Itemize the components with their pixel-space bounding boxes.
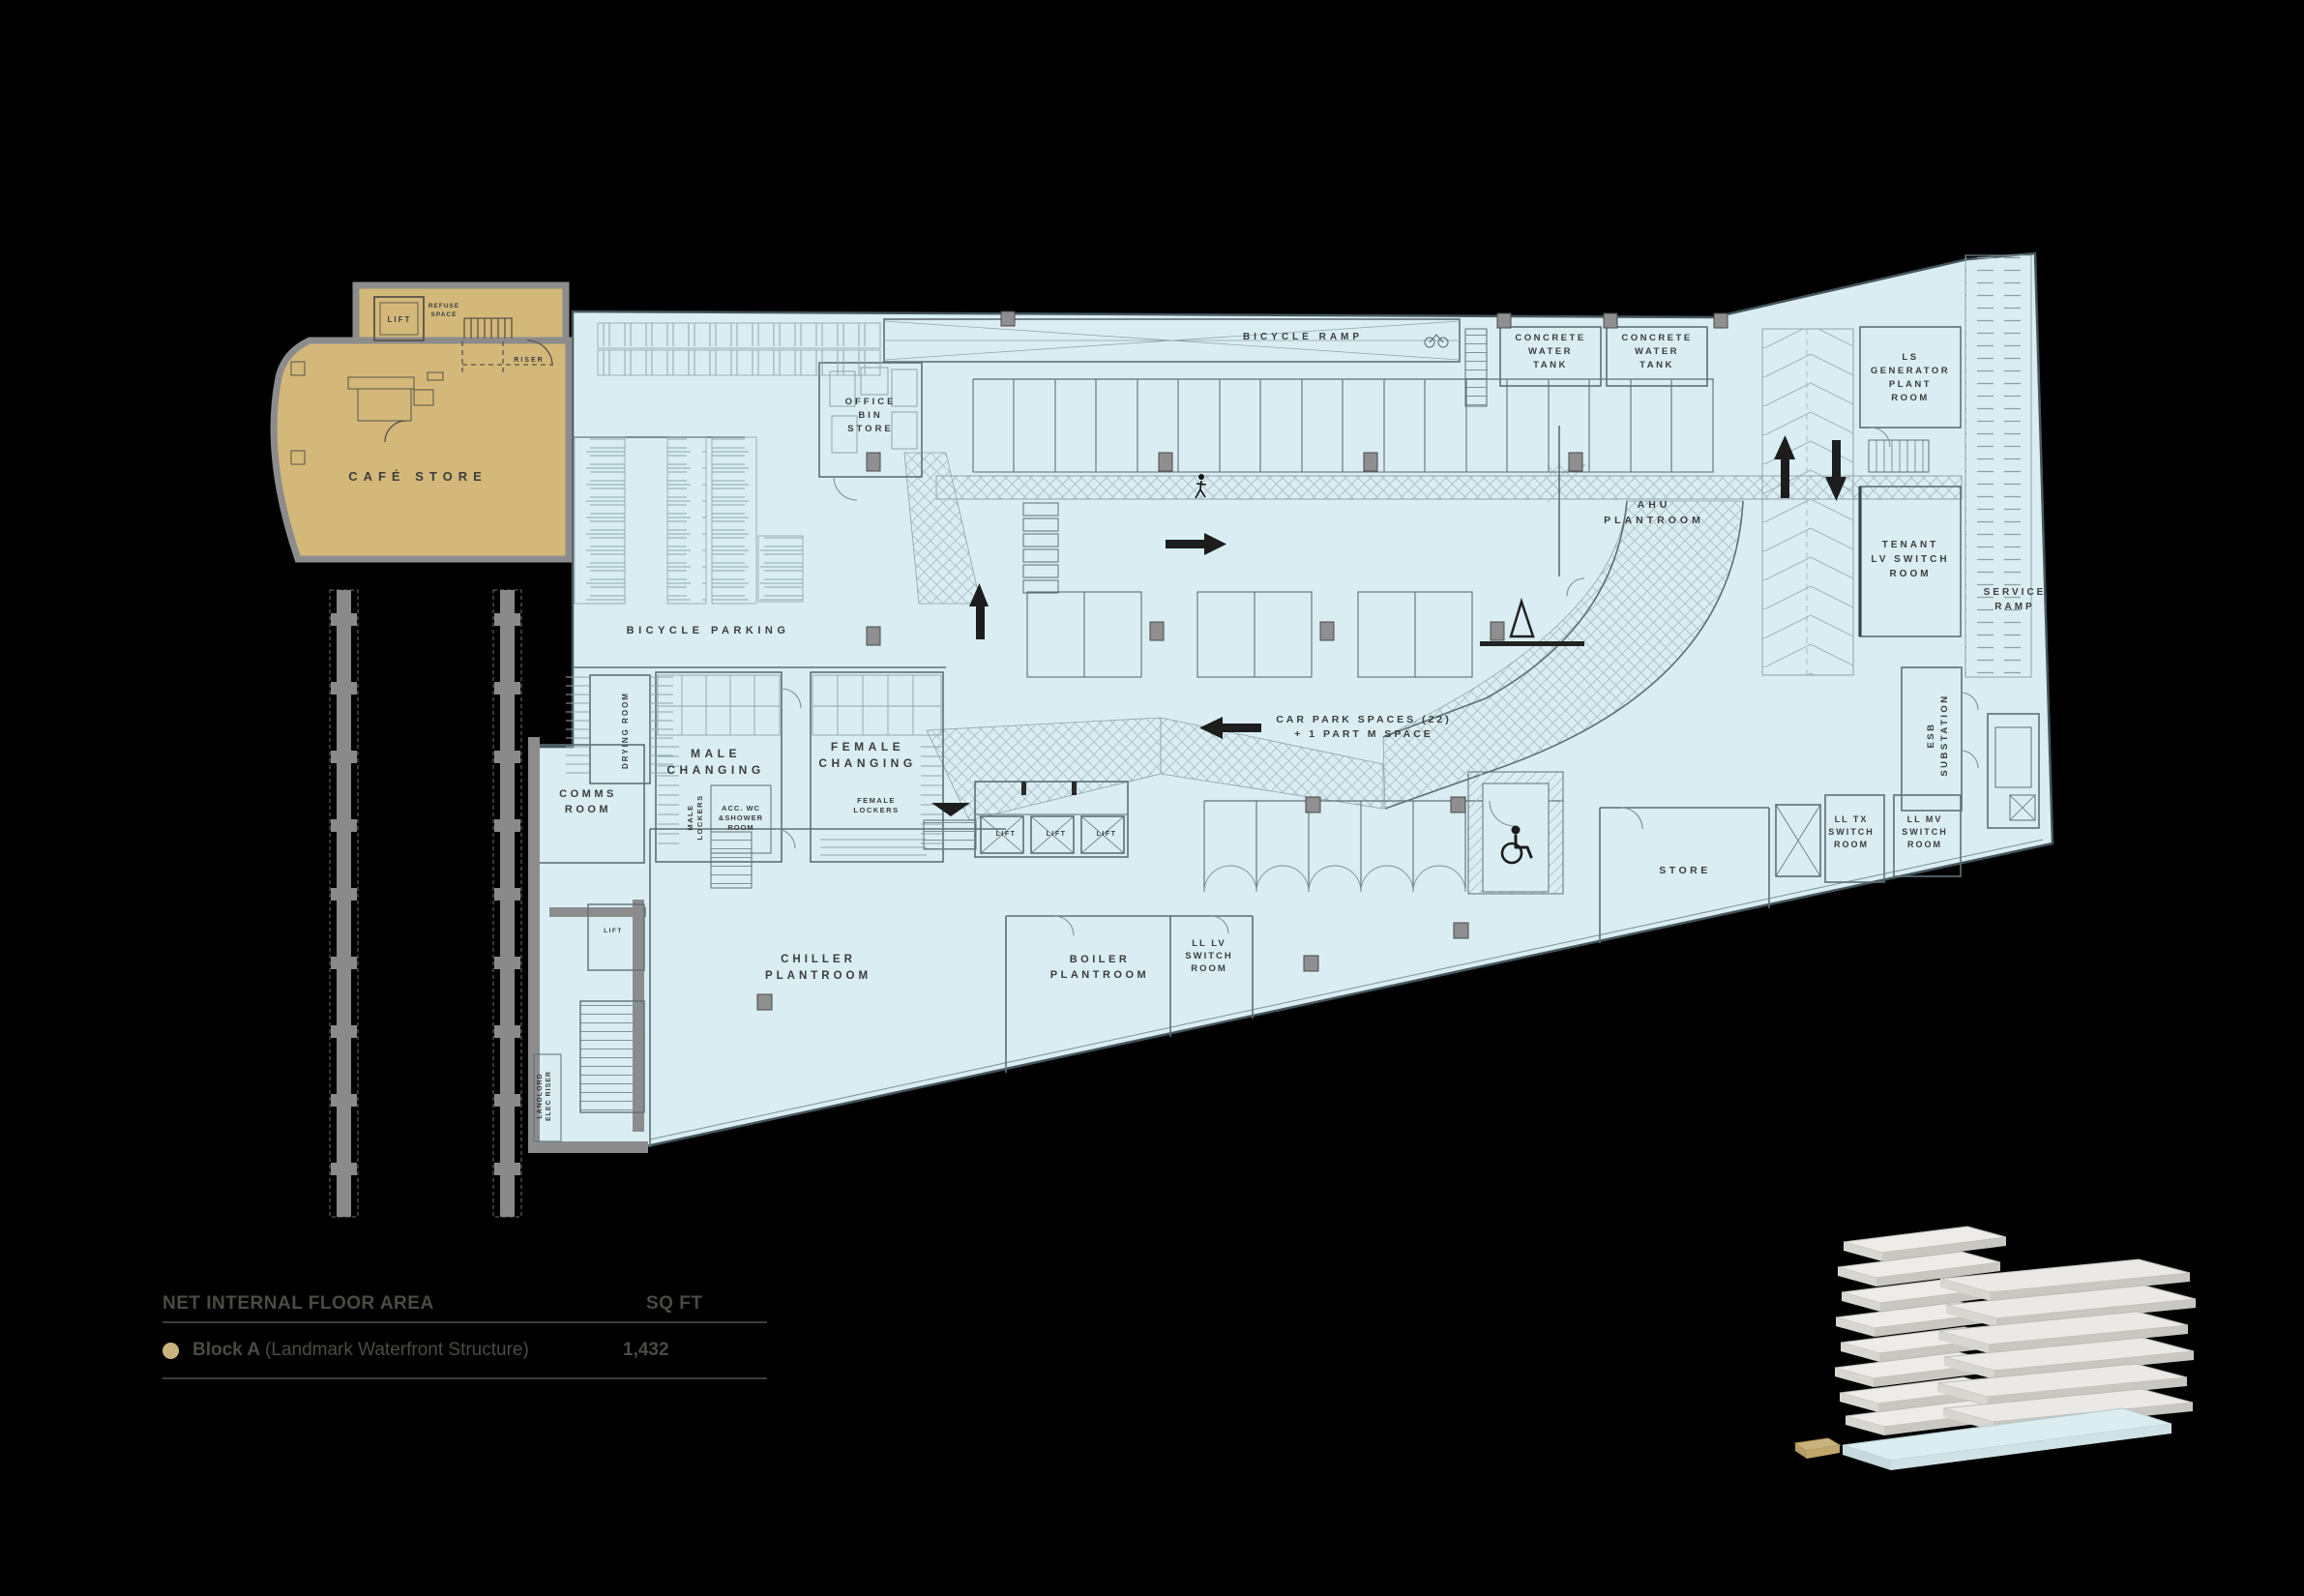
cafe-lift-label: LIFT <box>388 315 412 324</box>
lift-4-label: LIFT <box>604 928 623 934</box>
service-ramp-strip <box>1965 255 2031 677</box>
bicycle-parking-label: BICYCLE PARKING <box>627 625 790 636</box>
pier-strip-west <box>330 590 358 1217</box>
stair-top-center <box>1465 329 1487 406</box>
ll-tx-switch-room-label: LL TXSWITCHROOM <box>1828 814 1875 849</box>
block-a-descriptor: (Landmark Waterfront Structure) <box>265 1340 529 1361</box>
block-a-sqft-value: 1,432 <box>623 1340 669 1361</box>
floor-area-legend: NET INTERNAL FLOOR AREA SQ FT Block A (L… <box>162 1286 767 1379</box>
block-a-swatch <box>162 1343 179 1359</box>
pier-strip-east <box>493 590 521 1217</box>
cafe-gold-slab <box>1795 1438 1840 1459</box>
pier-strips <box>330 590 521 1217</box>
legend-unit-label: SQ FT <box>646 1293 702 1315</box>
drying-room-label: DRYING ROOM <box>621 692 630 769</box>
lobby-stair <box>924 820 976 849</box>
store-label: STORE <box>1659 865 1710 876</box>
cafe-store-label: CAFÉ STORE <box>348 469 487 484</box>
lift-1-label: LIFT <box>996 831 1017 838</box>
chiller-stair <box>711 832 752 888</box>
legend-title: NET INTERNAL FLOOR AREA <box>162 1293 646 1315</box>
lift-3-label: LIFT <box>1097 831 1117 838</box>
chevron-ramp <box>1762 329 1853 675</box>
tower-right-slabs <box>1937 1259 2196 1431</box>
female-lockers-label: FEMALELOCKERS <box>853 796 899 814</box>
building-3d-icon <box>1795 1227 2196 1470</box>
legend-divider-bottom <box>162 1377 767 1379</box>
lift-2-label: LIFT <box>1047 831 1067 838</box>
ll-mv-switch-room-label: LL MVSWITCHROOM <box>1902 814 1948 849</box>
riser-label: RISER <box>514 357 544 364</box>
legend-row-block-a: Block A (Landmark Waterfront Structure) … <box>162 1323 767 1377</box>
cafe-building <box>274 285 569 559</box>
bicycle-ramp-label: BICYCLE RAMP <box>1243 332 1363 342</box>
legend-header: NET INTERNAL FLOOR AREA SQ FT <box>162 1286 767 1321</box>
block-a-name: Block A <box>192 1340 260 1361</box>
cafe-main-body <box>274 340 569 559</box>
sw-stair <box>580 1001 644 1112</box>
stair-ls-gen <box>1869 440 1929 472</box>
ll-lv-switch-room-label: LL LVSWITCHROOM <box>1185 938 1232 974</box>
cafe-upper-block <box>356 285 566 340</box>
